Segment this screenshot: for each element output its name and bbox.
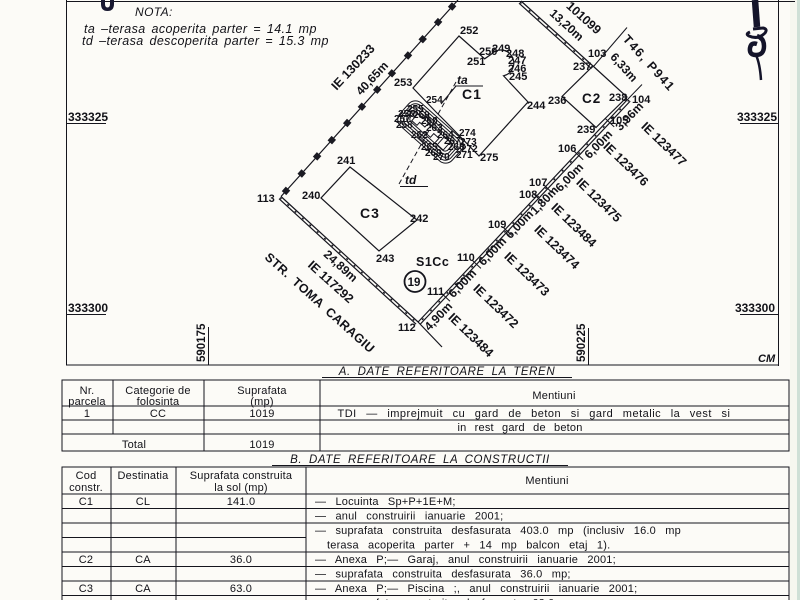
svg-text:1019: 1019 [249,408,274,420]
svg-text:237: 237 [573,61,591,73]
svg-text:270: 270 [433,152,450,163]
svg-text:107: 107 [529,177,547,189]
svg-text:112: 112 [398,322,416,334]
svg-text:106: 106 [558,143,576,155]
svg-text:— suprafata construita desf: — suprafata construita desfasurata 403.0… [315,525,681,537]
svg-text:constr.: constr. [69,482,103,494]
svg-text:333325: 333325 [737,110,777,124]
svg-text:folosinta: folosinta [137,396,180,408]
svg-text:243: 243 [376,253,394,265]
svg-text:274: 274 [459,128,476,139]
svg-text:Total: Total [122,439,146,451]
svg-text:td: td [405,173,417,187]
svg-text:Suprafata construita: Suprafata construita [190,470,293,482]
svg-text:Destinatia: Destinatia [118,470,170,482]
svg-text:CL: CL [136,496,150,508]
svg-text:244: 244 [527,100,546,112]
svg-text:C2: C2 [79,554,93,566]
svg-text:19: 19 [408,277,421,289]
svg-text:C2: C2 [582,91,601,106]
svg-text:239: 239 [577,124,595,136]
svg-text:A. DATE REFERITOARE LA TER: A. DATE REFERITOARE LA TEREN [338,366,556,378]
svg-text:S1Cc: S1Cc [416,255,449,269]
svg-text:B. DATE REFERITOARE LA CON: B. DATE REFERITOARE LA CONSTRUCTII [290,454,550,466]
svg-text:252: 252 [460,25,478,37]
svg-text:Cod: Cod [76,470,97,482]
svg-text:in rest gard de beton: in rest gard de beton [457,422,582,434]
svg-text:la sol (mp): la sol (mp) [214,482,268,494]
svg-text:C3: C3 [360,205,380,221]
svg-text:parcela: parcela [68,396,106,408]
svg-text:238: 238 [609,92,627,104]
svg-text:CM: CM [758,353,776,365]
svg-text:C1: C1 [79,496,93,508]
svg-text:NOTA:: NOTA: [135,5,173,19]
svg-text:Mentiuni: Mentiuni [525,475,568,487]
svg-text:113: 113 [257,193,275,205]
svg-text:CC: CC [150,408,166,420]
svg-text:C1: C1 [462,86,482,102]
svg-text:110: 110 [457,252,475,264]
svg-text:td –terasa descoperita parter: td –terasa descoperita parter = 15.3 mp [82,34,329,48]
svg-text:36.0: 36.0 [230,554,252,566]
svg-text:63.0: 63.0 [230,583,252,595]
svg-text:241: 241 [337,155,355,167]
svg-text:(mp): (mp) [250,396,273,408]
svg-text:275: 275 [480,152,498,164]
svg-text:C3: C3 [79,583,93,595]
svg-text:— suprafata construita desf: — suprafata construita desfasurata 36.0 … [315,569,571,581]
svg-text:590225: 590225 [576,323,588,362]
svg-text:333300: 333300 [68,301,108,315]
svg-text:TDI — imprejmuit cu gard: TDI — imprejmuit cu gard de beton si gar… [337,408,730,420]
svg-text:245: 245 [509,71,527,83]
svg-text:590175: 590175 [196,323,208,362]
svg-text:— Locuinta Sp+P+1E+M;: — Locuinta Sp+P+1E+M; [315,496,456,508]
svg-text:CA: CA [135,554,151,566]
svg-text:ta: ta [457,73,468,87]
svg-text:1019: 1019 [249,439,274,451]
svg-text:236: 236 [548,95,566,107]
svg-text:103: 103 [588,48,606,60]
svg-text:240: 240 [302,190,320,202]
svg-text:253: 253 [394,77,412,89]
svg-text:333325: 333325 [68,110,108,124]
svg-text:254: 254 [426,95,443,106]
svg-text:242: 242 [410,213,428,225]
svg-text:— Anexa P;— Garaj, anul c: — Anexa P;— Garaj, anul construirii ianu… [315,554,616,566]
svg-text:1: 1 [84,408,90,420]
svg-text:111: 111 [427,286,444,298]
svg-text:333300: 333300 [735,301,775,315]
svg-text:141.0: 141.0 [227,496,256,508]
svg-text:262: 262 [411,130,428,141]
svg-text:— Anexa P;— Piscina ;, an: — Anexa P;— Piscina ;, anul construirii … [315,583,637,595]
svg-text:CA: CA [135,583,151,595]
svg-text:Mentiuni: Mentiuni [532,390,575,402]
svg-text:— anul construirii ianuarie: — anul construirii ianuarie 2001; [315,511,503,523]
svg-text:terasa acoperita parter +: terasa acoperita parter + 14 mp balcon e… [327,540,610,552]
